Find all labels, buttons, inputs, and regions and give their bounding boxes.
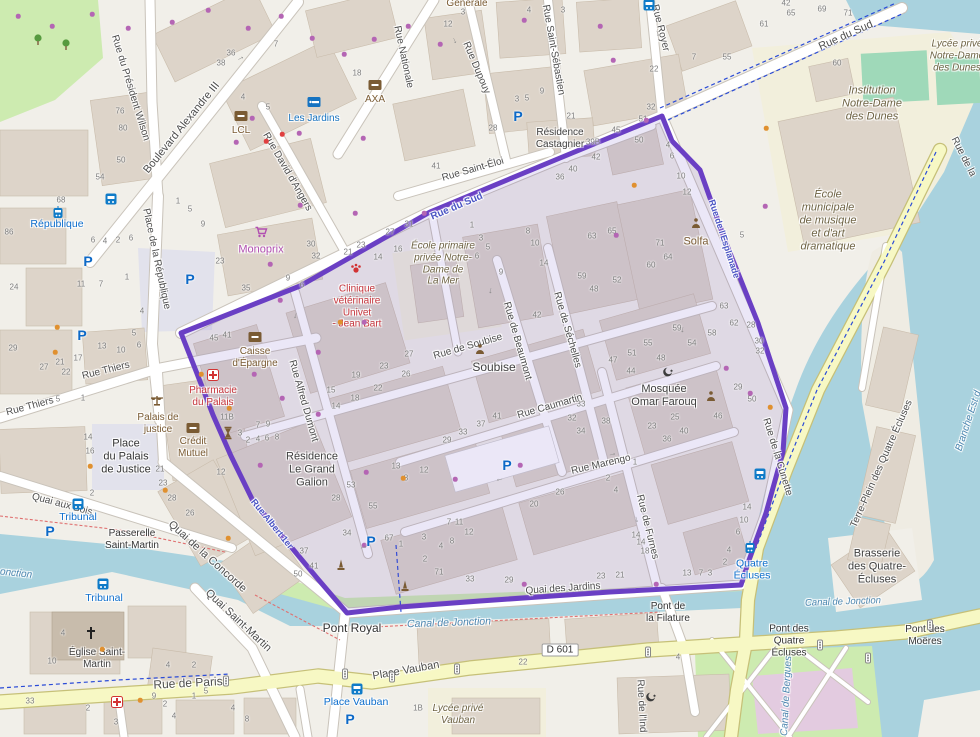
poi-dot — [611, 58, 616, 63]
oneway-arrow-icon: → — [486, 286, 497, 297]
poi-dot — [90, 12, 95, 17]
parking-icon: P — [345, 712, 354, 726]
pharmacy-icon — [111, 696, 123, 708]
place-du-palais-de-justice: Place du Palais de Justice — [101, 438, 151, 477]
house-number: 86 — [5, 228, 14, 237]
house-number: 4 — [439, 542, 443, 551]
poi-lcl: LCL — [232, 125, 250, 137]
signal-icon — [865, 653, 871, 664]
house-number: 5 — [740, 231, 744, 240]
house-number: 5 — [266, 103, 270, 112]
house-number: 2 — [90, 489, 94, 498]
house-number: 32 — [568, 414, 577, 423]
poi-ecole-primaire-notre-dame: École primaire privée Notre- Dame de La … — [411, 240, 475, 287]
house-number: 4 — [140, 307, 144, 316]
signal-icon — [817, 640, 823, 651]
house-number: 55 — [723, 53, 732, 62]
poi-dot — [297, 131, 302, 136]
house-number: 50 — [635, 136, 644, 145]
house-number: 28 — [168, 494, 177, 503]
bed-icon — [308, 97, 321, 107]
house-number: 37 — [300, 547, 309, 556]
house-number: 13 — [98, 342, 107, 351]
house-number: 16 — [394, 245, 403, 254]
poi-dot — [250, 116, 255, 121]
poi-dot — [278, 298, 283, 303]
house-number: 4 — [103, 237, 107, 246]
poi-generale: Générale — [446, 0, 487, 10]
house-number: 12 — [420, 466, 429, 475]
house-number: 12 — [465, 528, 474, 537]
house-number: 36 — [556, 173, 565, 182]
house-number: 54 — [688, 339, 697, 348]
poi-dot — [422, 211, 427, 216]
signal-icon — [389, 672, 395, 683]
house-number: 22 — [374, 384, 383, 393]
poi-dot — [227, 406, 232, 411]
scales-icon — [150, 395, 164, 407]
house-number: 30 — [755, 337, 764, 346]
bank-icon — [249, 332, 262, 342]
oneway-arrow-icon: → — [569, 340, 580, 351]
house-number: 22 — [519, 658, 528, 667]
house-number: 23 — [216, 257, 225, 266]
house-number: 9 — [540, 87, 544, 96]
house-number: 8 — [526, 227, 530, 236]
house-number: 7 — [99, 280, 103, 289]
poi-dot — [338, 320, 343, 325]
house-number: 44 — [627, 367, 636, 376]
poi-dot — [342, 52, 347, 57]
poi-dot — [53, 350, 58, 355]
bridge-pont-des-quatre-ecluses: Pont des Quatre Écluses — [769, 623, 808, 658]
bank-icon — [235, 111, 248, 121]
house-number: 7 — [256, 421, 260, 430]
poi-dot — [764, 126, 769, 131]
poi-brasserie-quatre-ecluses: Brasserie des Quatre- Écluses — [848, 548, 906, 587]
house-number: 40 — [680, 427, 689, 436]
house-number: 6 — [475, 252, 479, 261]
house-number: 4 — [676, 653, 680, 662]
poi-lycee-notre-dame: Lycée privé Notre-Dame des Dunes — [930, 38, 980, 73]
house-number: 32 — [756, 347, 765, 356]
poi-dot — [644, 118, 649, 123]
paw-icon — [350, 262, 362, 274]
house-number: 18 — [641, 547, 650, 556]
house-number: 21 — [56, 358, 65, 367]
house-number: 23 — [159, 479, 168, 488]
tram-icon — [746, 541, 755, 553]
poi-residence-le-grand-galion: Résidence Le Grand Galion — [286, 451, 338, 490]
house-number: 6 — [265, 434, 269, 443]
house-number: 58 — [708, 329, 717, 338]
bus-icon — [73, 499, 84, 510]
house-number: 14 — [374, 253, 383, 262]
house-number: 35 — [242, 284, 251, 293]
house-number: 4 — [166, 661, 170, 670]
house-number: 61 — [760, 20, 769, 29]
house-number: 63 — [720, 302, 729, 311]
poi-dot — [246, 26, 251, 31]
house-number: 53 — [347, 481, 356, 490]
house-number: 67 — [385, 534, 394, 543]
bus-icon — [98, 579, 109, 590]
house-number: 2 — [86, 704, 90, 713]
house-number: 71 — [844, 9, 853, 18]
house-number: 9 — [201, 220, 205, 229]
road-ref-badge: D 601 — [542, 644, 579, 657]
poi-dot — [226, 536, 231, 541]
map-canvas[interactable]: Rue du Président WilsonBoulevard Alexand… — [0, 0, 980, 737]
poi-dot — [279, 14, 284, 19]
poi-dot — [362, 320, 367, 325]
house-number: 13 — [392, 462, 401, 471]
house-number: 10 — [531, 239, 540, 248]
poi-dot — [748, 391, 753, 396]
parking-icon: P — [502, 458, 511, 472]
house-number: 8 — [275, 433, 279, 442]
parking-icon: P — [45, 524, 54, 538]
house-number: 15 — [327, 386, 336, 395]
house-number: 63 — [588, 232, 597, 241]
poi-dot — [361, 136, 366, 141]
house-number: 52 — [613, 276, 622, 285]
house-number: 27 — [405, 350, 414, 359]
house-number: 33 — [577, 400, 586, 409]
house-number: 12 — [217, 468, 226, 477]
poi-dot — [280, 132, 285, 137]
person-icon — [705, 390, 717, 402]
house-number: 47 — [609, 356, 618, 365]
poi-dot — [406, 24, 411, 29]
house-number: 42 — [533, 311, 542, 320]
house-number: 29 — [443, 436, 452, 445]
house-number: 14 — [332, 402, 341, 411]
monument-icon — [399, 580, 411, 593]
house-number: 20 — [530, 500, 539, 509]
house-number: 28 — [332, 494, 341, 503]
house-number: 4 — [727, 546, 731, 555]
house-number: 2 — [192, 661, 196, 670]
poi-dot — [310, 36, 315, 41]
house-number: 29 — [734, 383, 743, 392]
house-number: 26 — [402, 370, 411, 379]
house-number: 62 — [730, 319, 739, 328]
poi-dot — [724, 366, 729, 371]
house-number: 9 — [499, 268, 503, 277]
poi-dot — [170, 20, 175, 25]
house-number: 4 — [527, 6, 531, 15]
house-number: 21 — [567, 112, 576, 121]
house-number: 23 — [380, 362, 389, 371]
crescent-icon — [663, 366, 675, 378]
tree-icon — [61, 39, 71, 51]
signal-icon — [223, 676, 229, 687]
house-number: 6 — [670, 152, 674, 161]
poi-dot — [199, 372, 204, 377]
house-number: 31 — [405, 220, 414, 229]
bridge-pont-royal: Pont Royal — [323, 621, 382, 635]
house-number: 14 — [540, 259, 549, 268]
poi-dot — [614, 233, 619, 238]
house-number: 25 — [671, 413, 680, 422]
house-number: 8 — [245, 715, 249, 724]
house-number: 9 — [286, 274, 290, 283]
house-number: 32 — [312, 252, 321, 261]
house-number: 28 — [489, 124, 498, 133]
house-number: 5 — [204, 687, 208, 696]
person-icon — [474, 343, 486, 355]
house-number: 5 — [56, 395, 60, 404]
house-number: 1 — [633, 458, 637, 467]
poi-dot — [598, 24, 603, 29]
house-number: 10 — [48, 657, 57, 666]
house-number: 2 — [116, 236, 120, 245]
poi-solfa: Solfa — [683, 236, 708, 249]
house-number: 6 — [129, 234, 133, 243]
pharmacy-icon — [207, 369, 219, 381]
parking-icon: P — [366, 534, 375, 548]
house-number: 4 — [231, 704, 235, 713]
poi-palais-de-justice: Palais de justice — [137, 412, 178, 436]
house-number: 2 — [723, 558, 727, 567]
house-number: 50 — [117, 156, 126, 165]
house-number: 6 — [137, 341, 141, 350]
poi-mosquee-omar-farouq: Mosquée Omar Farouq — [631, 383, 696, 409]
house-number: 22 — [650, 65, 659, 74]
house-number: 23 — [648, 422, 657, 431]
house-number: 41 — [310, 562, 319, 571]
poi-dot — [258, 463, 263, 468]
house-number: 12 — [444, 20, 453, 29]
house-number: 2 — [606, 474, 610, 483]
house-number: 27 — [40, 363, 49, 372]
bank-icon — [187, 423, 200, 433]
parking-icon: P — [83, 254, 92, 268]
house-number: 48 — [590, 285, 599, 294]
poi-dot — [401, 476, 406, 481]
poi-axa: AXA — [365, 94, 385, 106]
house-number: 34 — [577, 427, 586, 436]
poi-dot — [252, 372, 257, 377]
house-number: 3 — [479, 234, 483, 243]
house-number: 24 — [10, 283, 19, 292]
house-number: 6 — [91, 236, 95, 245]
house-number: 46 — [714, 412, 723, 421]
tram-icon — [54, 206, 63, 218]
parking-icon: P — [77, 328, 86, 342]
house-number: 2 — [163, 700, 167, 709]
poi-dot — [138, 698, 143, 703]
house-number: 13 — [683, 569, 692, 578]
house-number: 7 — [447, 518, 451, 527]
house-number: 18 — [353, 69, 362, 78]
house-number: 1 — [470, 221, 474, 230]
poi-dot — [632, 183, 637, 188]
house-number: 60 — [647, 261, 656, 270]
house-number: 42 — [592, 153, 601, 162]
parking-icon: P — [185, 272, 194, 286]
house-number: 38 — [602, 417, 611, 426]
poi-dot — [438, 42, 443, 47]
house-number: 1 — [192, 692, 196, 701]
house-number: 27 — [386, 228, 395, 237]
poi-dot — [50, 24, 55, 29]
house-number: 26 — [556, 488, 565, 497]
house-number: 3 — [708, 569, 712, 578]
house-number: 1 — [125, 273, 129, 282]
house-number: 22 — [62, 368, 71, 377]
church-icon — [85, 626, 97, 640]
parking-icon: P — [513, 109, 522, 123]
stop-tribunal-2: Tribunal — [85, 592, 123, 604]
poi-dot — [100, 647, 105, 652]
house-number: 3 — [561, 6, 565, 15]
house-number: 39B — [586, 138, 600, 147]
house-number: 29 — [505, 576, 514, 585]
house-number: 41 — [493, 412, 502, 421]
bus-icon — [352, 684, 363, 695]
stop-place-vauban: Place Vauban — [324, 696, 389, 708]
house-number: 10 — [740, 516, 749, 525]
house-number: 71 — [656, 239, 665, 248]
poi-dot — [518, 463, 523, 468]
house-number: 7 — [699, 569, 703, 578]
poi-dot — [522, 582, 527, 587]
bridge-passerelle-saint-martin: Passerelle Saint-Martin — [105, 528, 159, 552]
house-number: 2 — [246, 436, 250, 445]
house-number: 80 — [119, 124, 128, 133]
house-number: 41 — [223, 331, 232, 340]
poi-soubise: Soubise — [472, 360, 515, 374]
house-number: 36 — [663, 435, 672, 444]
poi-ecole-municipale-musique: École municipale de musique et d'art dra… — [800, 189, 857, 254]
cart-icon — [255, 227, 268, 238]
house-number: 23 — [597, 572, 606, 581]
poi-dot — [372, 37, 377, 42]
house-number: 45 — [210, 334, 219, 343]
house-number: 18 — [351, 394, 360, 403]
house-number: 21 — [156, 465, 165, 474]
house-number: 64 — [664, 253, 673, 262]
poi-dot — [763, 204, 768, 209]
poi-dot — [316, 412, 321, 417]
house-number: 1B — [413, 704, 423, 713]
house-number: 2 — [423, 555, 427, 564]
house-number: 5 — [525, 94, 529, 103]
stop-quatre-ecluses: Quatre Écluses — [734, 558, 771, 583]
house-number: 19 — [352, 371, 361, 380]
house-number: 33 — [459, 428, 468, 437]
house-number: 30 — [307, 240, 316, 249]
monument-icon — [335, 559, 347, 572]
signal-icon — [927, 620, 933, 631]
poi-institution-notre-dame: Institution Notre-Dame des Dunes — [842, 85, 902, 124]
house-number: 5 — [132, 329, 136, 338]
house-number: 38 — [217, 59, 226, 68]
house-number: 3 — [461, 8, 465, 17]
poi-dot — [298, 203, 303, 208]
oneway-arrow-icon: → — [678, 325, 689, 336]
house-number: 76 — [116, 107, 125, 116]
poi-dot — [316, 350, 321, 355]
house-number: 14 — [84, 433, 93, 442]
poi-dot — [163, 488, 168, 493]
house-number: 69 — [818, 5, 827, 14]
house-number: 8 — [450, 537, 454, 546]
hourglass-icon — [223, 427, 234, 440]
house-number: 41 — [432, 162, 441, 171]
house-number: 26 — [186, 509, 195, 518]
bus-icon — [644, 0, 655, 11]
person-icon — [690, 217, 702, 229]
house-number: 3 — [238, 429, 242, 438]
signal-icon — [342, 669, 348, 680]
poi-les-jardins: Les Jardins — [288, 113, 339, 125]
house-number: 55 — [369, 502, 378, 511]
house-number: 33 — [466, 575, 475, 584]
poi-credit-mutuel: Crédit Mutuel — [178, 436, 208, 460]
house-number: 7 — [692, 53, 696, 62]
poi-dot — [126, 26, 131, 31]
house-number: 51 — [628, 349, 637, 358]
house-number: 21 — [616, 571, 625, 580]
bank-icon — [369, 80, 382, 90]
house-number: 28 — [747, 321, 756, 330]
house-number: 1 — [81, 394, 85, 403]
house-number: 33 — [26, 697, 35, 706]
house-number: 16 — [86, 447, 95, 456]
house-number: 3 — [515, 95, 519, 104]
crescent-icon — [646, 691, 658, 703]
house-number: 6 — [300, 281, 304, 290]
bus-icon — [106, 194, 117, 205]
poi-dot — [768, 405, 773, 410]
house-number: 29 — [9, 344, 18, 353]
house-number: 17 — [74, 354, 83, 363]
house-number: 10 — [677, 172, 686, 181]
house-number: 50 — [748, 395, 757, 404]
house-number: 12 — [683, 188, 692, 197]
house-number: 4 — [614, 486, 618, 495]
poi-dot — [522, 18, 527, 23]
poi-dot — [234, 140, 239, 145]
house-number: 9 — [266, 420, 270, 429]
bridge-pont-des-moeres: Pont des Moëres — [905, 624, 944, 648]
poi-caisse-depargne: Caisse d'Épargne — [232, 346, 277, 370]
house-number: 65 — [787, 9, 796, 18]
house-number: 5 — [486, 243, 490, 252]
stop-tribunal-1: Tribunal — [59, 511, 97, 523]
poi-dot — [55, 325, 60, 330]
house-number: 23 — [357, 241, 366, 250]
house-number: 50 — [294, 570, 303, 579]
house-number: 4 — [172, 712, 176, 721]
house-number: 34 — [343, 529, 352, 538]
house-number: 5 — [188, 205, 192, 214]
house-number: 68 — [57, 196, 66, 205]
poi-dot — [353, 211, 358, 216]
poi-monoprix: Monoprix — [238, 244, 283, 257]
poi-dot — [264, 139, 269, 144]
poi-eglise-saint-martin: Église Saint- Martin — [69, 647, 125, 671]
poi-dot — [280, 396, 285, 401]
tree-icon — [33, 34, 43, 46]
house-number: 11 — [455, 518, 463, 527]
house-number: 1 — [176, 197, 180, 206]
poi-dot — [88, 464, 93, 469]
house-number: 14 — [637, 538, 646, 547]
